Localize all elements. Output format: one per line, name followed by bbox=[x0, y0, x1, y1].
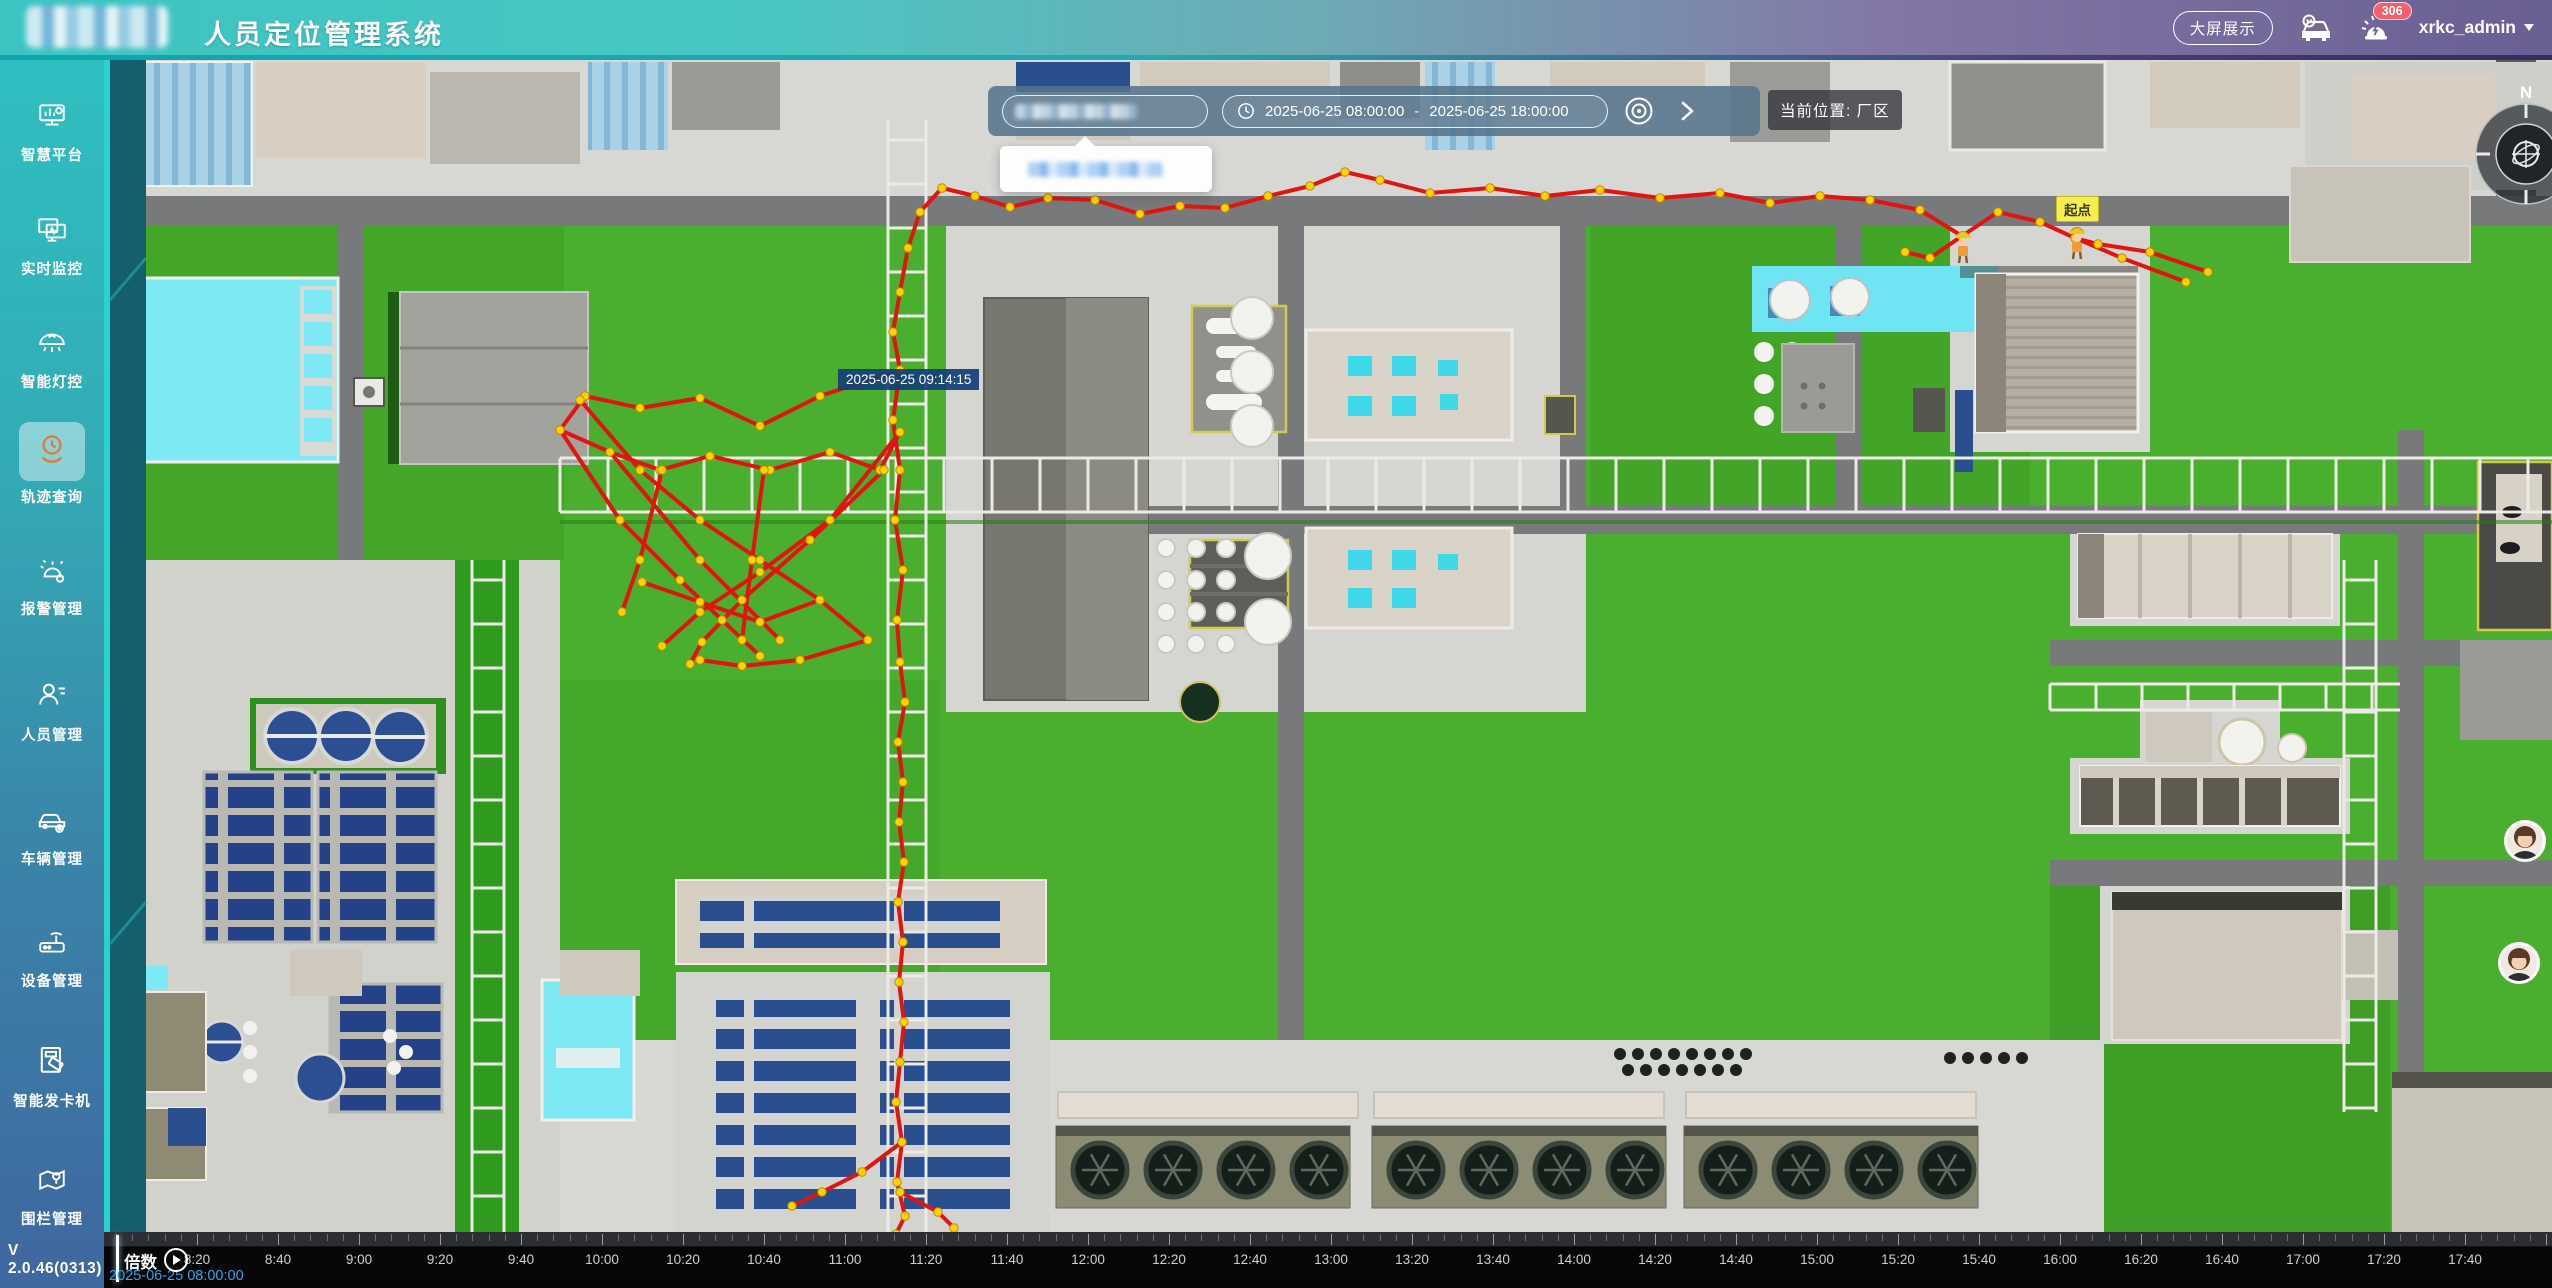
timeline-tick bbox=[1914, 1234, 1915, 1241]
timeline-tick bbox=[391, 1234, 392, 1241]
timeline-tick bbox=[1104, 1234, 1105, 1241]
sidebar-item-live-monitor[interactable]: 实时监控 bbox=[0, 212, 104, 279]
timeline-tick bbox=[1412, 1234, 1413, 1245]
timeline-tick bbox=[2173, 1234, 2174, 1241]
timeline-tick bbox=[424, 1234, 425, 1241]
timeline-time-label: 14:40 bbox=[1706, 1252, 1766, 1267]
search-suggestion-dropdown[interactable] bbox=[1000, 146, 1212, 192]
timeline-tick bbox=[2530, 1234, 2531, 1241]
sidebar-item-fence-management[interactable]: 围栏管理 bbox=[0, 1162, 104, 1229]
alarm-notification-icon[interactable]: 306 bbox=[2359, 11, 2393, 45]
timeline-tick bbox=[1704, 1234, 1705, 1241]
timeline-tick bbox=[1396, 1234, 1397, 1241]
timeline-tick bbox=[2190, 1234, 2191, 1241]
timeline-tick bbox=[1250, 1234, 1251, 1245]
timeline-tick bbox=[1315, 1234, 1316, 1241]
timeline-tick bbox=[2465, 1234, 2466, 1245]
worker-marker[interactable] bbox=[2066, 224, 2088, 265]
timeline-tick bbox=[910, 1234, 911, 1241]
timeline-tick bbox=[1542, 1234, 1543, 1241]
date-separator: - bbox=[1414, 103, 1419, 120]
timeline-tick bbox=[1072, 1234, 1073, 1241]
timeline-tick bbox=[2109, 1234, 2110, 1241]
timeline-tick bbox=[602, 1234, 603, 1245]
sidebar-item-label: 围栏管理 bbox=[21, 1208, 83, 1229]
timeline-time-label: 17:40 bbox=[2435, 1252, 2495, 1267]
device-router-icon bbox=[34, 924, 70, 965]
timeline-tick bbox=[181, 1234, 182, 1241]
timeline-tick bbox=[2352, 1234, 2353, 1241]
sidebar-item-personnel-management[interactable]: 人员管理 bbox=[0, 678, 104, 745]
timeline-time-label: 16:40 bbox=[2192, 1252, 2252, 1267]
timeline-time-label: 9:00 bbox=[329, 1252, 389, 1267]
timeline-tick bbox=[1833, 1234, 1834, 1241]
timeline-time-label: 10:20 bbox=[653, 1252, 713, 1267]
timeline-tick bbox=[2060, 1234, 2061, 1245]
live-monitor-icon bbox=[34, 212, 70, 253]
timeline-tick bbox=[1801, 1234, 1802, 1241]
timeline-tick bbox=[440, 1234, 441, 1245]
timeline-tick bbox=[2497, 1234, 2498, 1241]
timeline-tick bbox=[2303, 1234, 2304, 1245]
timeline-tick bbox=[1185, 1234, 1186, 1241]
timeline-tick bbox=[2368, 1234, 2369, 1241]
timeline-tick bbox=[1687, 1234, 1688, 1241]
timeline-tick bbox=[1817, 1234, 1818, 1245]
timeline-tick bbox=[2254, 1234, 2255, 1241]
timeline-time-label: 11:20 bbox=[896, 1252, 956, 1267]
notification-count-badge: 306 bbox=[2373, 2, 2412, 20]
timeline-tick bbox=[570, 1234, 571, 1241]
sidebar-item-label: 车辆管理 bbox=[21, 848, 83, 869]
timeline-tick bbox=[958, 1234, 959, 1241]
timeline-time-label: 14:00 bbox=[1544, 1252, 1604, 1267]
timeline-tick bbox=[942, 1234, 943, 1241]
timeline-tick bbox=[1525, 1234, 1526, 1241]
timeline-tick bbox=[2384, 1234, 2385, 1245]
timeline-tick bbox=[2125, 1234, 2126, 1241]
timeline-tick bbox=[229, 1234, 230, 1241]
timeline-time-label: 15:00 bbox=[1787, 1252, 1847, 1267]
timeline-tick bbox=[1898, 1234, 1899, 1245]
fence-map-pin-icon bbox=[34, 1162, 70, 1203]
worker-marker[interactable] bbox=[1952, 228, 1974, 269]
timeline-tick bbox=[1995, 1234, 1996, 1241]
timeline-tick bbox=[375, 1234, 376, 1241]
timeline-tick bbox=[310, 1234, 311, 1241]
timeline-tick bbox=[1331, 1234, 1332, 1245]
timeline-time-label: 15:20 bbox=[1868, 1252, 1928, 1267]
timeline-time-label: 14:20 bbox=[1625, 1252, 1685, 1267]
timeline-tick bbox=[456, 1234, 457, 1241]
car-gear-icon bbox=[34, 802, 70, 843]
timeline-time-label: 13:20 bbox=[1382, 1252, 1442, 1267]
sidebar-item-track-query[interactable]: 轨迹查询 bbox=[0, 422, 104, 507]
timeline-tick bbox=[1299, 1234, 1300, 1241]
timeline-tick bbox=[1444, 1234, 1445, 1241]
timeline-time-label: 17:00 bbox=[2273, 1252, 2333, 1267]
timeline-tick bbox=[262, 1234, 263, 1241]
timeline-tick bbox=[2400, 1234, 2401, 1241]
timeline-tick bbox=[715, 1234, 716, 1241]
timeline-tick bbox=[991, 1234, 992, 1241]
timeline-tick bbox=[1671, 1234, 1672, 1241]
timeline-tick bbox=[2206, 1234, 2207, 1241]
timeline-tick bbox=[618, 1234, 619, 1241]
smart-lamp-icon bbox=[34, 325, 70, 366]
timeline-tick bbox=[1509, 1234, 1510, 1241]
timeline-tick bbox=[2335, 1234, 2336, 1241]
timeline-tick bbox=[1120, 1234, 1121, 1241]
timeline-tick bbox=[1963, 1234, 1964, 1241]
timeline-tick bbox=[2287, 1234, 2288, 1241]
smart-platform-icon bbox=[34, 98, 70, 139]
chevron-down-icon bbox=[2524, 24, 2534, 31]
timeline-tick bbox=[877, 1234, 878, 1241]
timeline-tick bbox=[2141, 1234, 2142, 1245]
timeline-tick bbox=[2546, 1234, 2547, 1245]
clock-icon bbox=[1237, 102, 1255, 120]
timeline-tick bbox=[1574, 1234, 1575, 1245]
timeline-tick bbox=[1039, 1234, 1040, 1241]
timeline-tick bbox=[553, 1234, 554, 1241]
timeline-tick bbox=[278, 1234, 279, 1245]
timeline-tick bbox=[2433, 1234, 2434, 1241]
sidebar-item-smart-lighting[interactable]: 智能灯控 bbox=[0, 325, 104, 392]
timeline-tick bbox=[683, 1234, 684, 1245]
timeline-tick bbox=[1023, 1234, 1024, 1241]
play-button[interactable] bbox=[164, 1248, 188, 1272]
redacted-suggestion-text bbox=[1028, 162, 1162, 177]
main-nav-sidebar: 智慧平台 实时监控 智能灯控 bbox=[0, 60, 104, 1288]
username: xrkc_admin bbox=[2419, 17, 2516, 38]
timeline-tick bbox=[2481, 1234, 2482, 1241]
timeline-tick bbox=[472, 1234, 473, 1241]
timeline-tick bbox=[667, 1234, 668, 1241]
sidebar-item-alarm-management[interactable]: 报警管理 bbox=[0, 552, 104, 619]
date-end: 2025-06-25 18:00:00 bbox=[1429, 103, 1568, 120]
timeline-tick bbox=[359, 1234, 360, 1245]
playback-timeline[interactable]: 8:208:409:009:209:4010:0010:2010:4011:00… bbox=[104, 1232, 2552, 1288]
timeline-tick bbox=[1849, 1234, 1850, 1241]
timeline-tick bbox=[1428, 1234, 1429, 1241]
sidebar-item-card-dispenser[interactable]: 智能发卡机 bbox=[0, 1042, 104, 1111]
timeline-time-label: 15:40 bbox=[1949, 1252, 2009, 1267]
timeline-time-label: 8:40 bbox=[248, 1252, 308, 1267]
timeline-tick bbox=[2028, 1234, 2029, 1241]
timeline-tick bbox=[1380, 1234, 1381, 1241]
timeline-time-label: 12:40 bbox=[1220, 1252, 1280, 1267]
timeline-tick bbox=[1282, 1234, 1283, 1241]
sidebar-item-vehicle-management[interactable]: 车辆管理 bbox=[0, 802, 104, 869]
sidebar-item-smart-platform[interactable]: 智慧平台 bbox=[0, 98, 104, 165]
timeline-tick bbox=[2449, 1234, 2450, 1241]
personnel-avatar[interactable] bbox=[2498, 942, 2540, 989]
person-icon bbox=[34, 678, 70, 719]
user-menu[interactable]: xrkc_admin bbox=[2419, 17, 2534, 38]
card-machine-icon bbox=[33, 1042, 71, 1085]
timeline-tick bbox=[2076, 1234, 2077, 1241]
sidebar-item-label: 智能发卡机 bbox=[13, 1090, 91, 1111]
timeline-tick bbox=[197, 1234, 198, 1245]
timeline-tick bbox=[813, 1234, 814, 1241]
track-query-toolbar: 2025-06-25 08:00:00 - 2025-06-25 18:00:0… bbox=[988, 86, 1760, 136]
timeline-tick bbox=[408, 1234, 409, 1241]
timeline-tick bbox=[1169, 1234, 1170, 1245]
timeline-time-label: 10:00 bbox=[572, 1252, 632, 1267]
map-left-edge bbox=[104, 60, 146, 1232]
timeline-tick bbox=[132, 1234, 133, 1241]
timeline-time-label: 17:20 bbox=[2354, 1252, 2414, 1267]
timeline-tick bbox=[1979, 1234, 1980, 1245]
timeline-tick bbox=[1493, 1234, 1494, 1245]
locate-target-icon[interactable] bbox=[1622, 94, 1656, 128]
timeline-tick bbox=[165, 1234, 166, 1241]
timeline-tick bbox=[327, 1234, 328, 1241]
map-warehouse-west bbox=[354, 292, 588, 464]
sidebar-item-device-management[interactable]: 设备管理 bbox=[0, 924, 104, 991]
timeline-tick bbox=[489, 1234, 490, 1241]
sidebar-item-label: 轨迹查询 bbox=[21, 486, 83, 507]
timeline-tick bbox=[1477, 1234, 1478, 1241]
sidebar-item-label: 智慧平台 bbox=[21, 144, 83, 165]
timeline-tick bbox=[2157, 1234, 2158, 1241]
timeline-tick bbox=[1639, 1234, 1640, 1241]
timeline-time-label: 10:40 bbox=[734, 1252, 794, 1267]
alarm-bell-icon bbox=[34, 552, 70, 593]
date-range-picker[interactable]: 2025-06-25 08:00:00 - 2025-06-25 18:00:0… bbox=[1222, 95, 1608, 128]
timeline-tick bbox=[1558, 1234, 1559, 1241]
map-clarifiers bbox=[250, 698, 446, 774]
timeline-tick bbox=[1720, 1234, 1721, 1241]
timeline-tick bbox=[894, 1234, 895, 1241]
timeline-tick bbox=[294, 1234, 295, 1241]
app-version: V 2.0.46(0313) bbox=[8, 1242, 104, 1278]
timeline-tick bbox=[1866, 1234, 1867, 1241]
play-track-arrow[interactable] bbox=[1670, 94, 1704, 128]
timeline-tick bbox=[1768, 1234, 1769, 1241]
map-pool-west bbox=[118, 278, 338, 462]
app-header: 人员定位管理系统 大屏展示 bbox=[0, 0, 2552, 60]
timeline-time-label: 11:40 bbox=[977, 1252, 1037, 1267]
playback-speed-label: 倍数 bbox=[124, 1249, 157, 1273]
timeline-tick bbox=[732, 1234, 733, 1241]
sidebar-item-label: 智能灯控 bbox=[21, 371, 83, 392]
timeline-time-label: 9:40 bbox=[491, 1252, 551, 1267]
timeline-tick bbox=[2319, 1234, 2320, 1241]
timeline-tick bbox=[748, 1234, 749, 1241]
timeline-tick bbox=[1930, 1234, 1931, 1241]
timeline-tick bbox=[796, 1234, 797, 1241]
person-search-input[interactable] bbox=[1002, 95, 1208, 128]
timeline-tick bbox=[1623, 1234, 1624, 1241]
timeline-tick bbox=[780, 1234, 781, 1241]
vehicle-monitor-icon[interactable] bbox=[2299, 11, 2333, 45]
timeline-tick bbox=[1088, 1234, 1089, 1245]
current-location-chip: 当前位置: 厂区 bbox=[1768, 90, 1902, 130]
timeline-tick bbox=[1363, 1234, 1364, 1241]
timeline-tick bbox=[764, 1234, 765, 1245]
sidebar-item-label: 人员管理 bbox=[21, 724, 83, 745]
timeline-tick bbox=[1007, 1234, 1008, 1245]
timeline-tick bbox=[699, 1234, 700, 1241]
sidebar-item-label: 报警管理 bbox=[21, 598, 83, 619]
track-query-icon bbox=[19, 422, 85, 481]
timeline-tick bbox=[1752, 1234, 1753, 1241]
timeline-tick bbox=[1947, 1234, 1948, 1241]
start-point-label: 起点 bbox=[2056, 196, 2099, 222]
personnel-avatar[interactable] bbox=[2504, 820, 2546, 867]
timeline-tick bbox=[213, 1234, 214, 1241]
timeline-tick bbox=[1137, 1234, 1138, 1241]
date-start: 2025-06-25 08:00:00 bbox=[1265, 103, 1404, 120]
timeline-tick bbox=[861, 1234, 862, 1241]
timeline-tick bbox=[634, 1234, 635, 1241]
timeline-tick bbox=[1606, 1234, 1607, 1241]
timeline-tick bbox=[2271, 1234, 2272, 1241]
company-logo bbox=[26, 6, 168, 48]
timeline-tick bbox=[1882, 1234, 1883, 1241]
timeline-tick bbox=[829, 1234, 830, 1241]
timeline-tick bbox=[521, 1234, 522, 1245]
timeline-tick bbox=[1347, 1234, 1348, 1241]
timeline-tick bbox=[1218, 1234, 1219, 1241]
timeline-tick bbox=[975, 1234, 976, 1241]
sidebar-item-label: 设备管理 bbox=[21, 970, 83, 991]
timeline-time-label: 13:00 bbox=[1301, 1252, 1361, 1267]
map-canvas[interactable]: N bbox=[104, 60, 2552, 1232]
timeline-tick bbox=[651, 1234, 652, 1241]
timeline-tick bbox=[343, 1234, 344, 1241]
factory-3d-map: N bbox=[104, 60, 2552, 1232]
timeline-tick bbox=[926, 1234, 927, 1245]
timeline-tick bbox=[2092, 1234, 2093, 1241]
timeline-time-label: 11:00 bbox=[815, 1252, 875, 1267]
timeline-tick bbox=[1655, 1234, 1656, 1245]
page-title: 人员定位管理系统 bbox=[204, 13, 444, 52]
timeline-tick bbox=[148, 1234, 149, 1241]
timeline-tick bbox=[1266, 1234, 1267, 1241]
timeline-time-label: 9:20 bbox=[410, 1252, 470, 1267]
timeline-tick bbox=[2238, 1234, 2239, 1241]
timeline-tick bbox=[1056, 1234, 1057, 1241]
timeline-tick bbox=[1785, 1234, 1786, 1241]
timeline-tick bbox=[537, 1234, 538, 1241]
timeline-tick bbox=[246, 1234, 247, 1241]
timeline-time-label: 12:00 bbox=[1058, 1252, 1118, 1267]
timeline-tick-strip[interactable] bbox=[104, 1232, 2552, 1247]
timeline-time-label: 12:20 bbox=[1139, 1252, 1199, 1267]
track-point-tooltip: 2025-06-25 09:14:15 bbox=[838, 369, 979, 390]
timeline-time-label: 16:20 bbox=[2111, 1252, 2171, 1267]
timeline-tick bbox=[1234, 1234, 1235, 1241]
timeline-tick bbox=[1461, 1234, 1462, 1241]
timeline-tick bbox=[2044, 1234, 2045, 1241]
timeline-tick bbox=[1736, 1234, 1737, 1245]
timeline-tick bbox=[845, 1234, 846, 1245]
timeline-tick bbox=[586, 1234, 587, 1241]
timeline-time-label: 16:00 bbox=[2030, 1252, 2090, 1267]
timeline-tick bbox=[2011, 1234, 2012, 1241]
timeline-tick bbox=[2416, 1234, 2417, 1241]
timeline-tick bbox=[1590, 1234, 1591, 1241]
personnel-positioning-app: N 2025-06-25 09:14:15 起点 bbox=[0, 0, 2552, 1288]
redacted-person-name bbox=[1015, 104, 1137, 119]
timeline-tick bbox=[2514, 1234, 2515, 1241]
big-screen-button[interactable]: 大屏展示 bbox=[2173, 11, 2273, 45]
timeline-tick bbox=[505, 1234, 506, 1241]
sidebar-item-label: 实时监控 bbox=[21, 258, 83, 279]
timeline-time-label: 13:40 bbox=[1463, 1252, 1523, 1267]
timeline-tick bbox=[2222, 1234, 2223, 1245]
compass-north-label: N bbox=[2520, 83, 2532, 102]
timeline-tick bbox=[1201, 1234, 1202, 1241]
timeline-tick bbox=[1153, 1234, 1154, 1241]
